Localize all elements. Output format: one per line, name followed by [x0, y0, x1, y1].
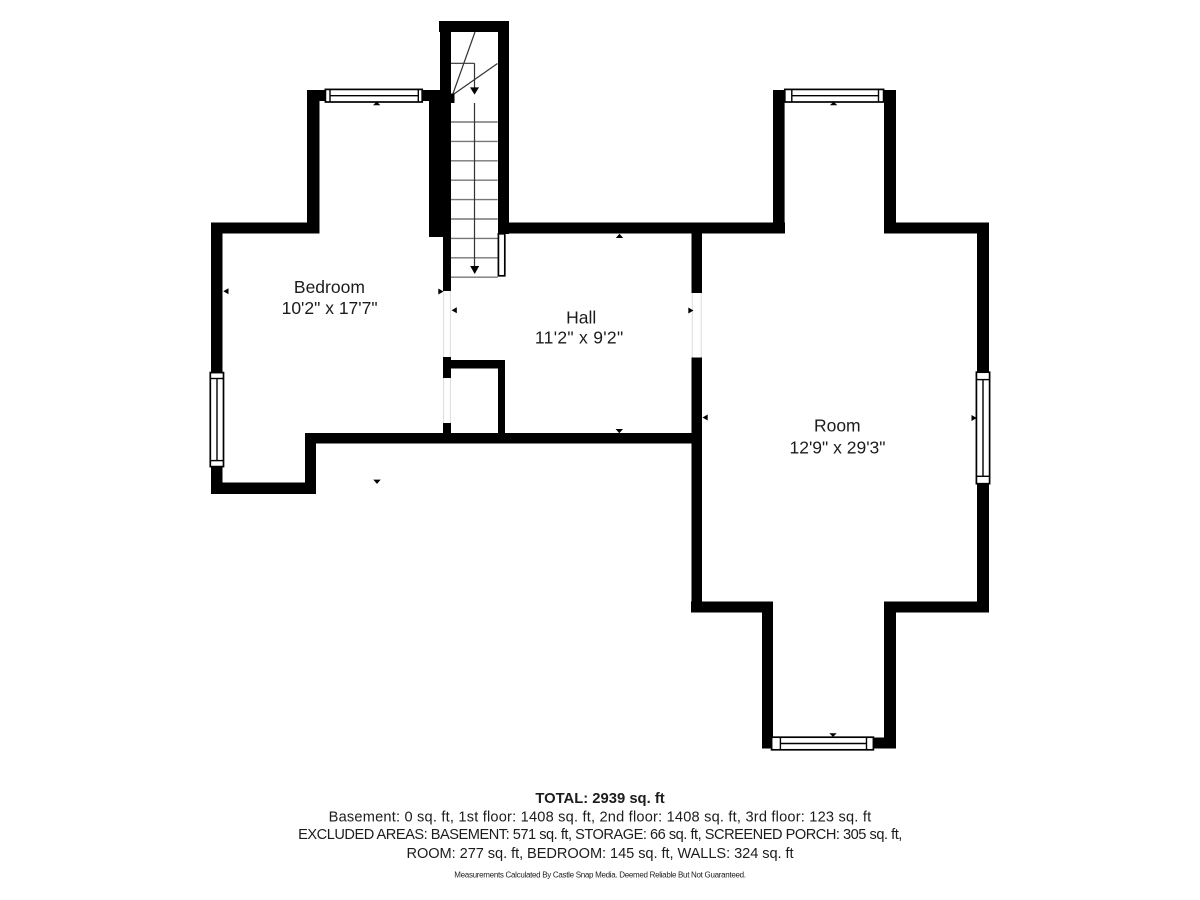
svg-text:10'2" x 17'7": 10'2" x 17'7": [282, 298, 378, 318]
svg-text:TOTAL: 2939 sq. ft: TOTAL: 2939 sq. ft: [535, 791, 664, 807]
svg-text:11'2" x 9'2": 11'2" x 9'2": [535, 328, 624, 348]
svg-text:Measurements Calculated By Cas: Measurements Calculated By Castle Snap M…: [454, 871, 746, 880]
svg-text:Room: Room: [814, 416, 861, 436]
svg-text:12'9" x 29'3": 12'9" x 29'3": [790, 438, 886, 458]
svg-text:Basement: 0 sq. ft, 1st floor:: Basement: 0 sq. ft, 1st floor: 1408 sq. …: [329, 809, 872, 825]
svg-text:EXCLUDED AREAS: BASEMENT: 571: EXCLUDED AREAS: BASEMENT: 571 sq. ft, ST…: [298, 827, 902, 843]
svg-text:Bedroom: Bedroom: [294, 277, 365, 297]
svg-text:ROOM: 277 sq. ft, BEDROOM: 145: ROOM: 277 sq. ft, BEDROOM: 145 sq. ft, W…: [406, 846, 793, 862]
svg-text:Hall: Hall: [566, 307, 596, 327]
